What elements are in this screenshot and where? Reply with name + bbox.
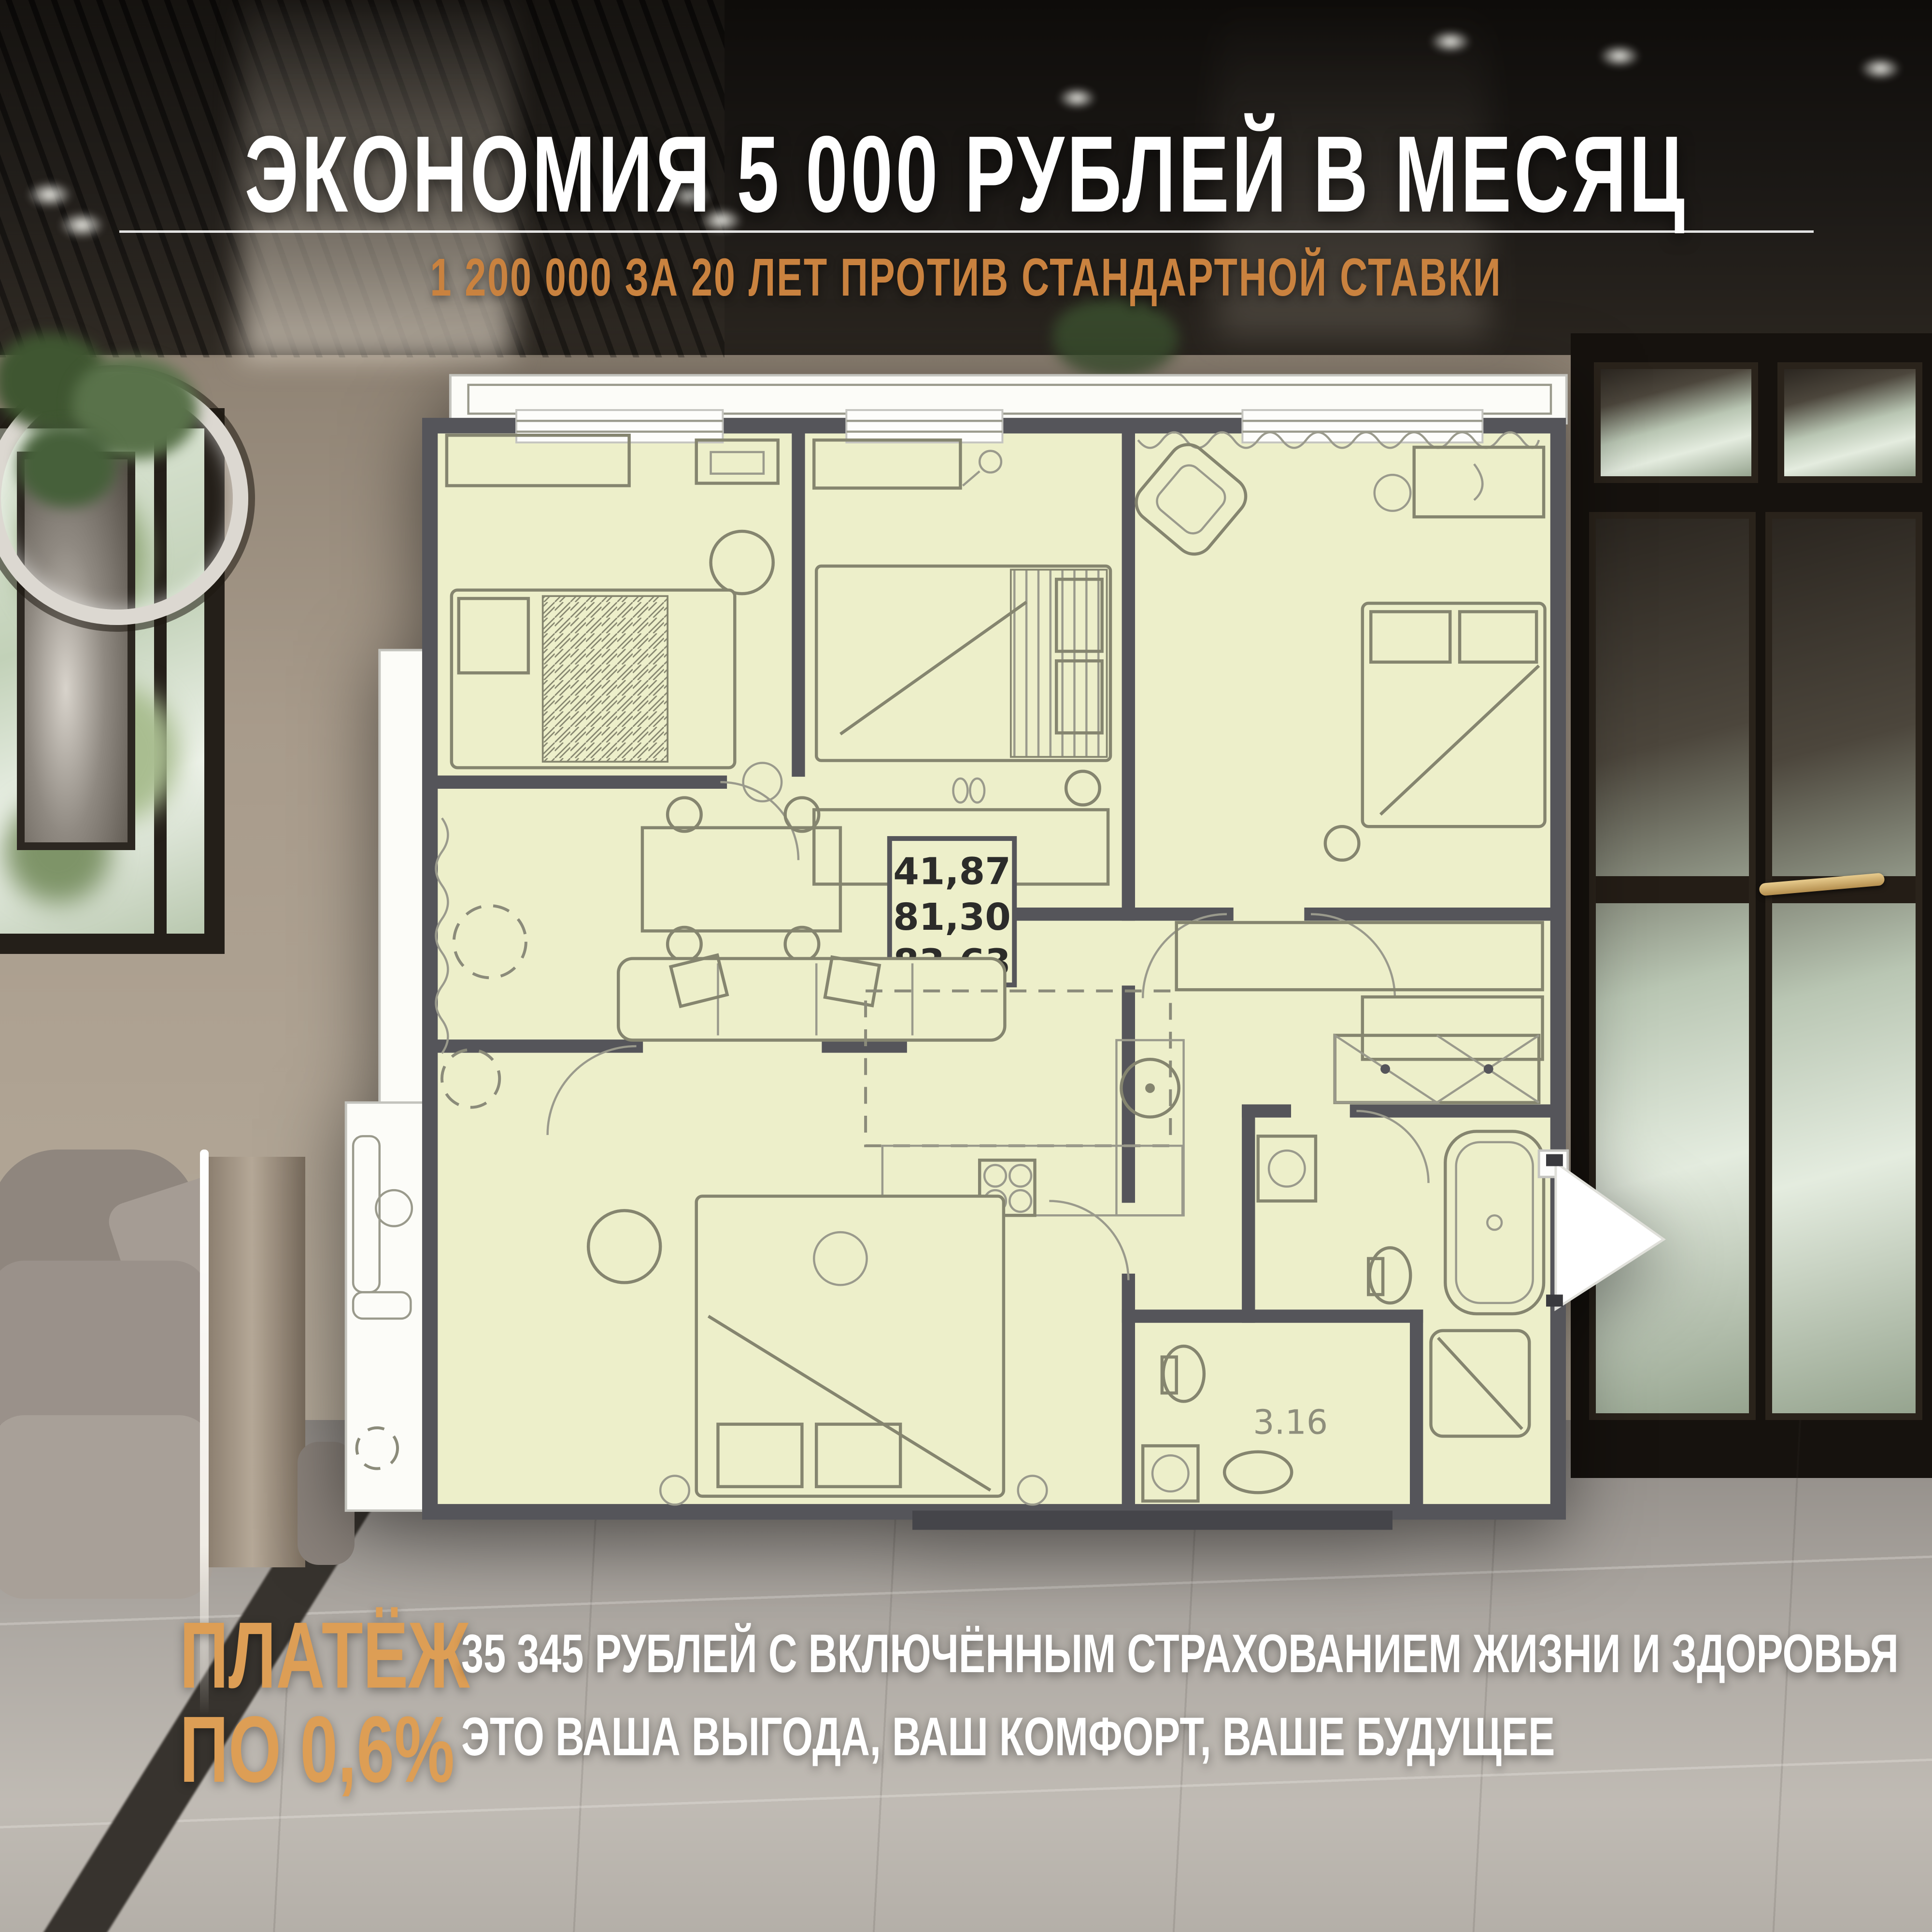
headline-divider bbox=[119, 230, 1814, 233]
floor-plan: 41,87 81,30 83,63 bbox=[333, 368, 1576, 1556]
glass-partition bbox=[1571, 333, 1932, 1478]
room-area-label: 3.16 bbox=[1253, 1403, 1328, 1442]
threshold bbox=[912, 1511, 1392, 1530]
plant-leaves bbox=[1053, 299, 1179, 377]
area-value-1: 41,87 bbox=[893, 850, 1011, 893]
glass-door bbox=[1765, 512, 1922, 1420]
ceiling-spotlight bbox=[1430, 30, 1471, 53]
area-value-2: 81,30 bbox=[893, 895, 1011, 939]
ceiling-spotlight bbox=[1860, 57, 1901, 80]
poster: ЭКОНОМИЯ 5 000 РУБЛЕЙ В МЕСЯЦ 1 200 000 … bbox=[0, 0, 1932, 1932]
subheadline: 1 200 000 ЗА 20 ЛЕТ ПРОТИВ СТАНДАРТНОЙ С… bbox=[430, 248, 1502, 307]
door-crossbar bbox=[1596, 876, 1749, 903]
glass-door bbox=[1589, 512, 1756, 1420]
benefit-line1: 35 345 РУБЛЕЙ С ВКЛЮЧЁННЫМ СТРАХОВАНИЕМ … bbox=[461, 1627, 1899, 1681]
ceiling-spotlight bbox=[27, 181, 72, 208]
sofa-seat bbox=[0, 1261, 208, 1435]
headline: ЭКОНОМИЯ 5 000 РУБЛЕЙ В МЕСЯЦ bbox=[244, 120, 1687, 228]
ceiling-spotlight bbox=[1599, 44, 1640, 68]
ceiling-spotlight bbox=[1058, 87, 1096, 109]
ceiling-spotlight bbox=[59, 212, 105, 239]
payment-label-line1: ПЛАТЁЖ bbox=[180, 1608, 469, 1703]
sofa-seat-lower bbox=[0, 1415, 213, 1599]
plaster-column bbox=[209, 1157, 305, 1567]
benefit-line2: ЭТО ВАША ВЫГОДА, ВАШ КОМФОРТ, ВАШЕ БУДУЩ… bbox=[461, 1710, 1555, 1764]
payment-label-line2: ПО 0,6% bbox=[180, 1703, 455, 1797]
windows bbox=[516, 410, 1482, 442]
plant-leaves bbox=[19, 425, 116, 507]
transom-window bbox=[1777, 362, 1922, 483]
transom-window bbox=[1594, 362, 1758, 483]
floor-plan-svg: 41,87 81,30 83,63 bbox=[333, 368, 1576, 1556]
